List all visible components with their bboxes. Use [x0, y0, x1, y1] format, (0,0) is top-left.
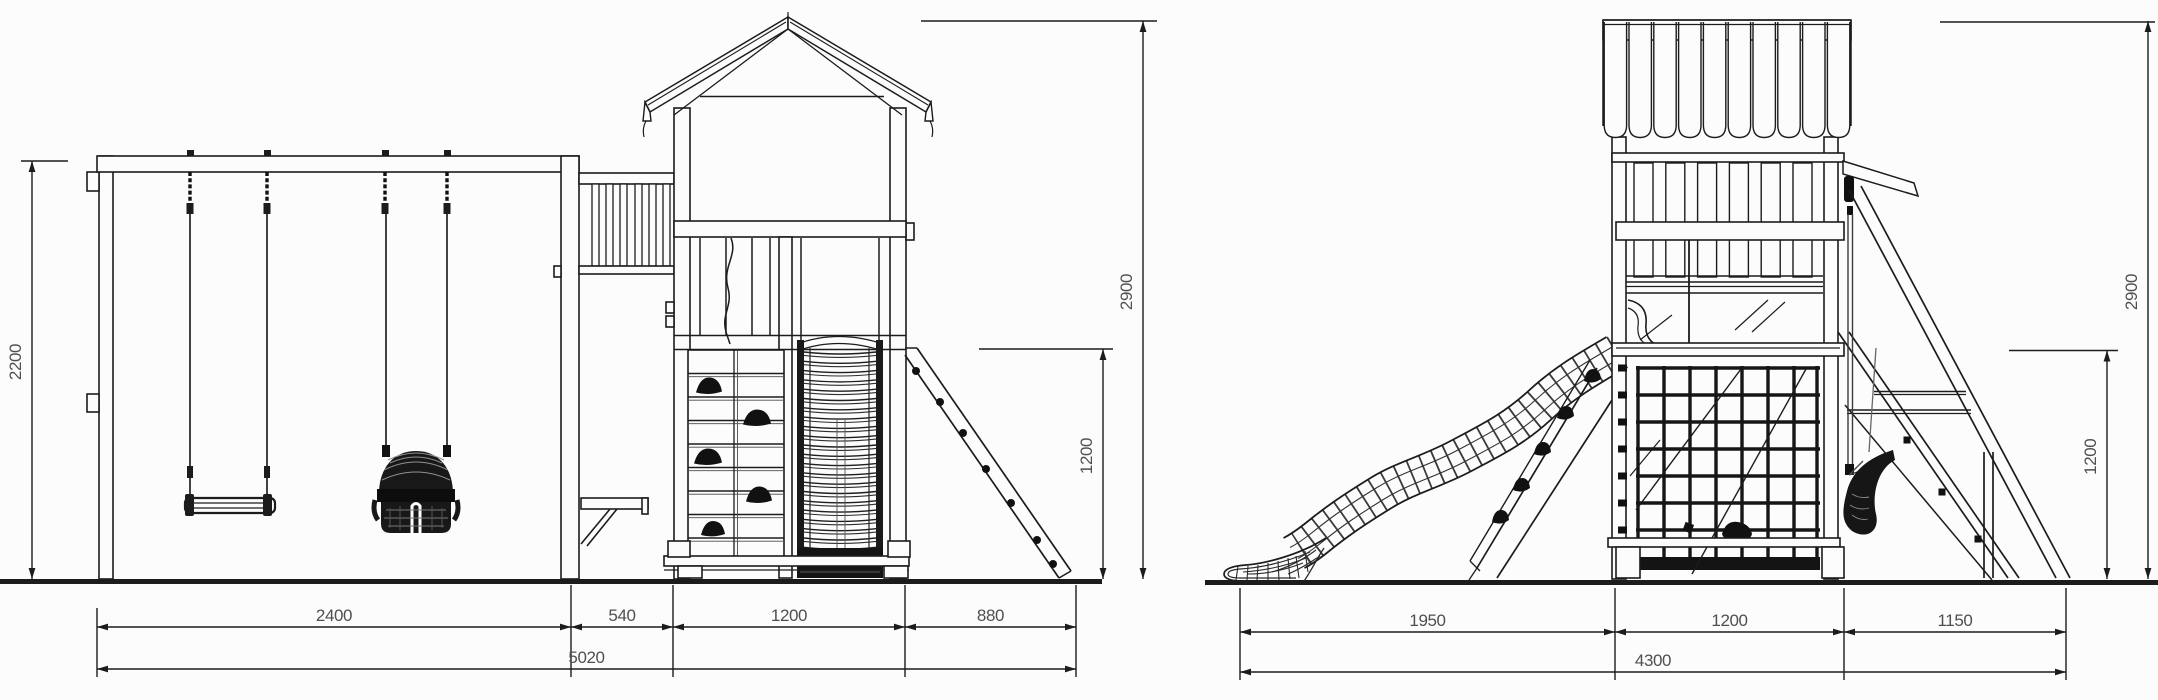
svg-text:2200: 2200: [6, 344, 25, 380]
svg-text:2900: 2900: [1117, 274, 1136, 310]
svg-text:1200: 1200: [2081, 439, 2100, 475]
svg-text:1200: 1200: [771, 606, 807, 625]
svg-text:1150: 1150: [1938, 611, 1973, 630]
svg-text:1950: 1950: [1409, 611, 1445, 630]
svg-text:4300: 4300: [1635, 651, 1671, 670]
svg-text:1200: 1200: [1077, 438, 1096, 474]
svg-text:2900: 2900: [2122, 274, 2141, 310]
svg-text:5020: 5020: [568, 648, 604, 667]
svg-text:880: 880: [977, 606, 1004, 625]
svg-text:2400: 2400: [316, 606, 352, 625]
svg-text:540: 540: [608, 606, 635, 625]
svg-text:1200: 1200: [1711, 611, 1747, 630]
